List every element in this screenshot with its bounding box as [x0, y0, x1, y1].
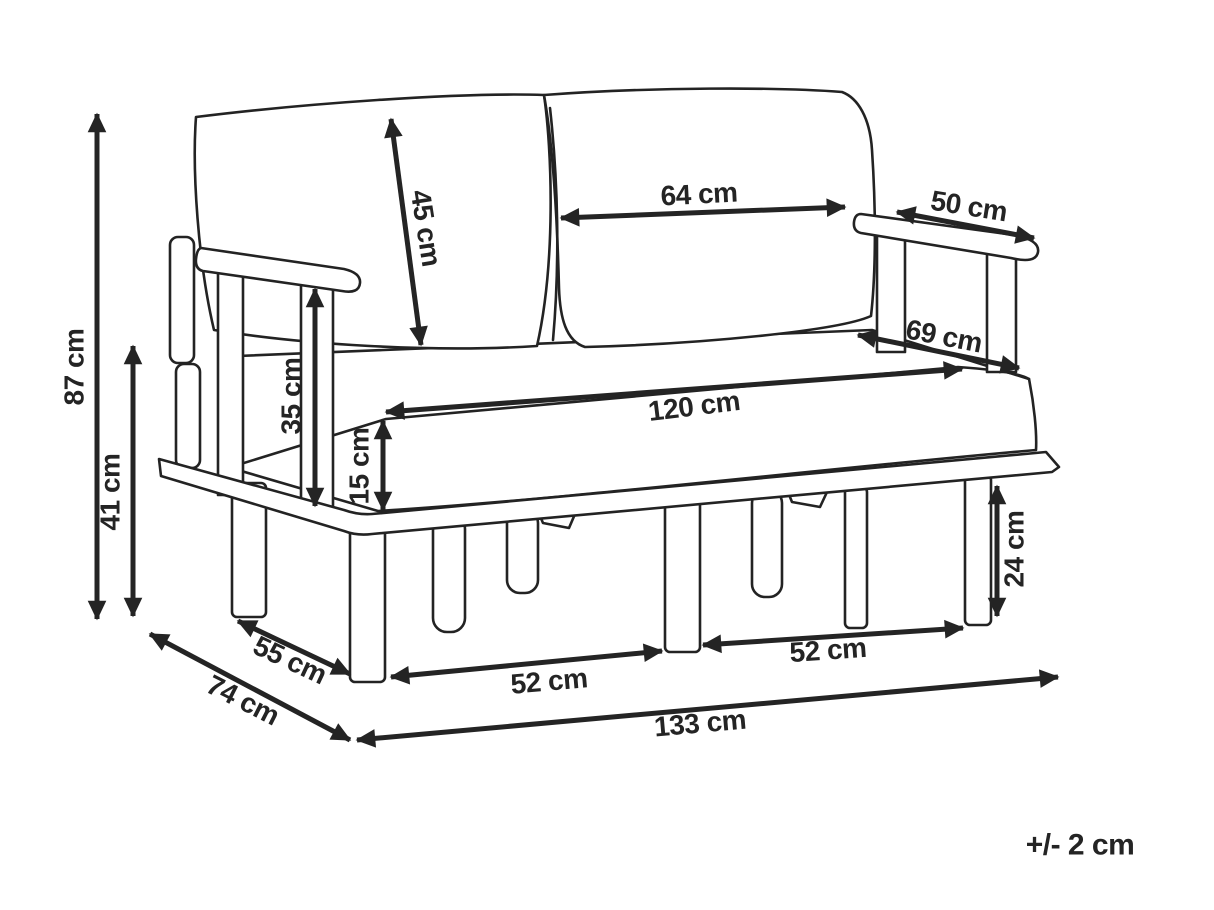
tolerance-note: +/- 2 cm	[1026, 829, 1135, 862]
dim-base-frame-height: 41 cm	[95, 346, 134, 616]
leg-front-center	[665, 500, 700, 652]
dim-leg-height-label: 24 cm	[999, 511, 1030, 588]
dim-front-leg-spacing-right: 52 cm	[703, 628, 963, 668]
dim-front-leg-spacing-left: 52 cm	[391, 651, 662, 700]
left-arm-side-slab-upper	[170, 237, 194, 363]
dim-base-frame-height-label: 41 cm	[95, 454, 126, 531]
dim-overall-depth-label: 74 cm	[202, 669, 285, 732]
dim-side-leg-spacing-label: 55 cm	[249, 630, 332, 691]
left-arm-side-slab-lower	[176, 364, 200, 468]
dim-back-cushion-width-label: 64 cm	[660, 177, 738, 212]
dim-front-leg-spacing-left-label: 52 cm	[509, 662, 588, 700]
dim-overall-width-label: 133 cm	[653, 704, 747, 743]
dim-leg-height: 24 cm	[997, 486, 1030, 616]
dim-overall-depth: 74 cm	[150, 634, 350, 740]
dim-overall-height-label: 87 cm	[59, 329, 90, 406]
dim-side-leg-spacing: 55 cm	[238, 621, 350, 690]
left-arm-rear-post	[218, 268, 243, 495]
leg-front-right	[965, 475, 991, 625]
right-arm-rear-post	[877, 227, 905, 352]
dim-seat-cushion-thickness-label: 15 cm	[344, 428, 375, 505]
back-cushion-left	[195, 95, 551, 349]
diagram-canvas: 87 cm 41 cm 45 cm 64 cm 50 cm 69 cm 120 …	[0, 0, 1214, 910]
right-arm-front-post	[987, 243, 1016, 372]
dim-overall-height: 87 cm	[59, 114, 98, 619]
dim-armrest-height-label: 35 cm	[276, 358, 307, 435]
dim-overall-width: 133 cm	[357, 677, 1058, 742]
sofa-dimension-diagram: 87 cm 41 cm 45 cm 64 cm 50 cm 69 cm 120 …	[0, 0, 1214, 910]
leg-rear-right	[845, 487, 867, 628]
leg-front-left	[350, 520, 385, 682]
leg-mid-back-3	[752, 490, 782, 597]
leg-mid-back-1	[433, 515, 465, 632]
dim-front-leg-spacing-right-label: 52 cm	[789, 632, 868, 668]
